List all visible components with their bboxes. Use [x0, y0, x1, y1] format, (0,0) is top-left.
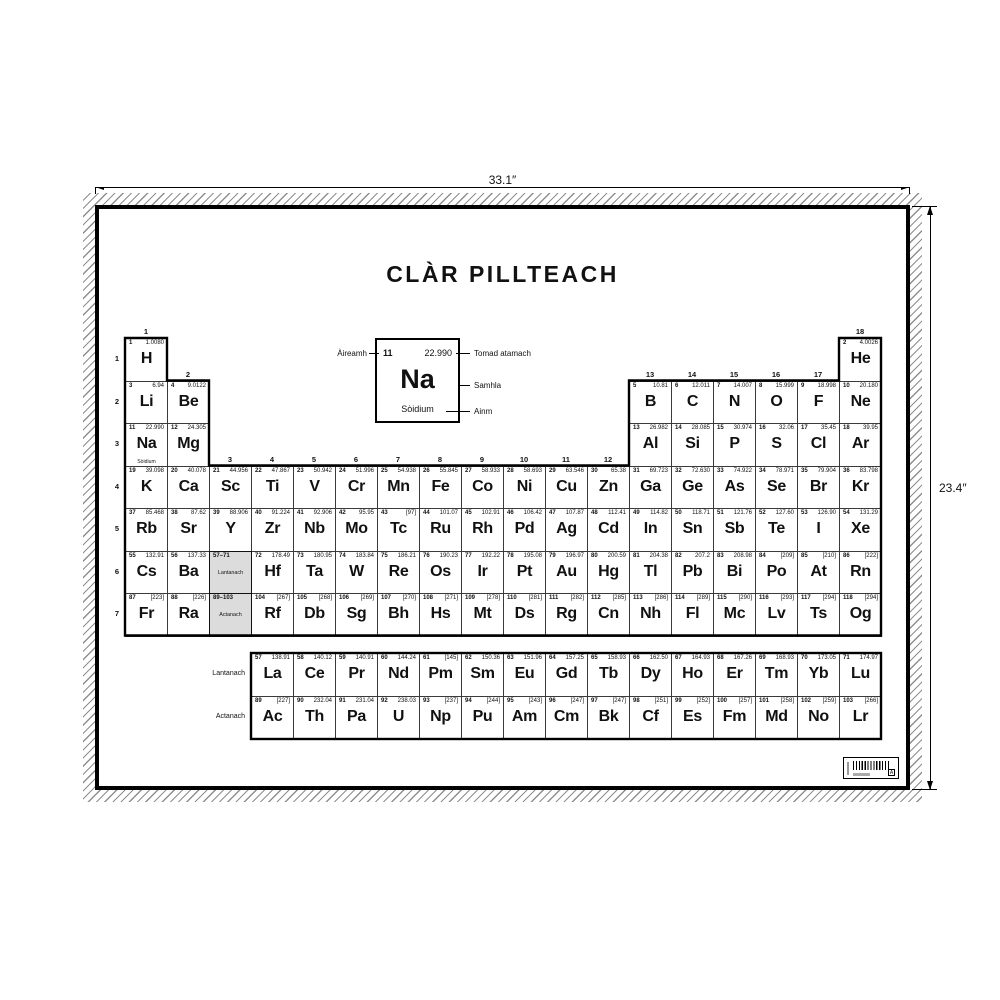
group-label-5: 5	[293, 455, 335, 464]
element-symbol: Ac	[252, 708, 293, 726]
atomic-number: 37	[129, 510, 136, 517]
element-symbol: Tl	[630, 563, 671, 581]
element-symbol: Ru	[420, 520, 461, 538]
atomic-number: 86	[843, 553, 850, 560]
atomic-mass: [271]	[445, 595, 458, 602]
element-cell-Cn: 112[285]Cn	[587, 593, 630, 637]
element-symbol: Mn	[378, 478, 419, 496]
period-label-6: 6	[103, 567, 119, 576]
element-symbol: Cn	[588, 605, 629, 623]
atomic-mass: 178.49	[272, 553, 290, 560]
atomic-mass: [226]	[193, 595, 206, 602]
atomic-mass: [145]	[445, 655, 458, 662]
element-symbol: Db	[294, 605, 335, 623]
atomic-mass: 208.98	[734, 553, 752, 560]
atomic-number: 19	[129, 468, 136, 475]
atomic-mass: 164.93	[692, 655, 710, 662]
atomic-mass: 157.25	[566, 655, 584, 662]
legend-callout-line	[369, 353, 379, 354]
atomic-number: 93	[423, 698, 430, 705]
element-symbol: Cs	[126, 563, 167, 581]
element-symbol: Zr	[252, 520, 293, 538]
element-cell-Mc: 115[290]Mc	[713, 593, 756, 637]
element-cell-Tm: 69168.93Tm	[755, 653, 798, 697]
atomic-mass: [278]	[487, 595, 500, 602]
group-label-18: 18	[839, 327, 881, 336]
element-symbol: Th	[294, 708, 335, 726]
poster: CLÀR PILLTEACH Àireamh 11 22.990 Na Sòid…	[95, 205, 910, 790]
element-cell-Ar: 1839.95Ar	[839, 423, 882, 467]
atomic-number: 51	[717, 510, 724, 517]
certification-mark: A	[888, 769, 895, 776]
atomic-mass: [290]	[739, 595, 752, 602]
element-symbol: Sc	[210, 478, 251, 496]
atomic-number: 110	[507, 595, 517, 602]
atomic-number: 43	[381, 510, 388, 517]
width-dimension-line	[95, 187, 910, 188]
atomic-mass: [259]	[823, 698, 836, 705]
atomic-number: 18	[843, 425, 850, 432]
element-symbol: Ne	[840, 393, 881, 411]
element-cell-Pa: 91231.04Pa	[335, 696, 378, 740]
element-cell-As: 3374.922As	[713, 466, 756, 510]
element-cell-Sg: 106[269]Sg	[335, 593, 378, 637]
drawing-canvas: 33.1″ 23.4″ CLÀR PILLTEACH Àireamh 11 22…	[0, 0, 1000, 1000]
atomic-number: 44	[423, 510, 430, 517]
element-symbol: Bk	[588, 708, 629, 726]
element-symbol: C	[672, 393, 713, 411]
group-label-10: 10	[503, 455, 545, 464]
element-symbol: Bi	[714, 563, 755, 581]
atomic-number: 56	[171, 553, 178, 560]
atomic-number: 95	[507, 698, 514, 705]
element-symbol: Be	[168, 393, 209, 411]
element-cell-Sm: 62150.36Sm	[461, 653, 504, 697]
element-symbol: Cm	[546, 708, 587, 726]
atomic-mass: 69.723	[650, 468, 668, 475]
atomic-mass: 180.95	[314, 553, 332, 560]
element-cell-Pr: 59140.91Pr	[335, 653, 378, 697]
legend-callout-line	[456, 353, 470, 354]
element-cell-K: 1939.098K	[125, 466, 168, 510]
atomic-number: 107	[381, 595, 391, 602]
group-label-6: 6	[335, 455, 377, 464]
element-name: Sòidium	[129, 459, 164, 464]
element-cell-Gd: 64157.25Gd	[545, 653, 588, 697]
atomic-number: 80	[591, 553, 598, 560]
atomic-mass: 95.95	[359, 510, 374, 517]
atomic-mass: 107.87	[566, 510, 584, 517]
element-cell-Os: 76190.23Os	[419, 551, 462, 595]
element-cell-No: 102[259]No	[797, 696, 840, 740]
element-cell-Pd: 46106.42Pd	[503, 508, 546, 552]
atomic-mass: 14.007	[734, 383, 752, 390]
atomic-mass: 207.2	[695, 553, 710, 560]
atomic-mass: 138.91	[272, 655, 290, 662]
atomic-mass: 51.996	[356, 468, 374, 475]
atomic-number: 75	[381, 553, 388, 560]
atomic-mass: 72.630	[692, 468, 710, 475]
atomic-mass: [294]	[823, 595, 836, 602]
element-symbol: S	[756, 435, 797, 453]
element-symbol: Pt	[504, 563, 545, 581]
element-symbol: Np	[420, 708, 461, 726]
atomic-mass: 83.798	[860, 468, 878, 475]
element-symbol: Mo	[336, 520, 377, 538]
element-symbol: Cd	[588, 520, 629, 538]
element-cell-Ds: 110[281]Ds	[503, 593, 546, 637]
element-symbol: Os	[420, 563, 461, 581]
atomic-mass: 40.078	[188, 468, 206, 475]
element-cell-B: 510.81B	[629, 381, 672, 425]
atomic-number: 2	[843, 340, 846, 347]
atomic-number: 58	[297, 655, 304, 662]
atomic-number: 101	[759, 698, 769, 705]
element-cell-Ni: 2858.693Ni	[503, 466, 546, 510]
element-cell-Nb: 4192.906Nb	[293, 508, 336, 552]
element-cell-Db: 105[268]Db	[293, 593, 336, 637]
atomic-number: 64	[549, 655, 556, 662]
element-cell-W: 74183.84W	[335, 551, 378, 595]
atomic-number: 92	[381, 698, 388, 705]
element-cell-U: 92238.03U	[377, 696, 420, 740]
element-cell-Ho: 67164.93Ho	[671, 653, 714, 697]
element-symbol: La	[252, 665, 293, 683]
atomic-number: 102	[801, 698, 811, 705]
element-symbol: Rb	[126, 520, 167, 538]
element-symbol: Co	[462, 478, 503, 496]
element-cell-Cr: 2451.996Cr	[335, 466, 378, 510]
atomic-mass: 54.938	[398, 468, 416, 475]
atomic-number: 55	[129, 553, 136, 560]
atomic-mass: 183.84	[356, 553, 374, 560]
element-cell-Rn: 86[222]Rn	[839, 551, 882, 595]
atomic-mass: 28.085	[692, 425, 710, 432]
atomic-number: 29	[549, 468, 556, 475]
element-cell-Hs: 108[271]Hs	[419, 593, 462, 637]
element-symbol: Md	[756, 708, 797, 726]
atomic-number: 30	[591, 468, 598, 475]
element-symbol: As	[714, 478, 755, 496]
element-symbol: Nh	[630, 605, 671, 623]
atomic-number: 22	[255, 468, 262, 475]
atomic-number: 79	[549, 553, 556, 560]
element-cell-O: 815.999O	[755, 381, 798, 425]
element-cell-Li: 36.94Li	[125, 381, 168, 425]
element-cell-Er: 68167.26Er	[713, 653, 756, 697]
element-symbol: Hf	[252, 563, 293, 581]
element-cell-Th: 90232.04Th	[293, 696, 336, 740]
element-symbol: In	[630, 520, 671, 538]
atomic-mass: 192.22	[482, 553, 500, 560]
dimension-arrow-up	[927, 206, 933, 215]
atomic-number: 32	[675, 468, 682, 475]
element-symbol: Tc	[378, 520, 419, 538]
element-cell-Lr: 103[266]Lr	[839, 696, 882, 740]
atomic-mass: 6.94	[152, 383, 164, 390]
element-cell-Rb: 3785.468Rb	[125, 508, 168, 552]
element-symbol: Lv	[756, 605, 797, 623]
atomic-number: 85	[801, 553, 808, 560]
atomic-mass: 121.76	[734, 510, 752, 517]
element-symbol: U	[378, 708, 419, 726]
element-symbol: Zn	[588, 478, 629, 496]
element-cell-Mt: 109[278]Mt	[461, 593, 504, 637]
period-label-3: 3	[103, 439, 119, 448]
atomic-number: 10	[843, 383, 850, 390]
element-symbol: Ta	[294, 563, 335, 581]
atomic-mass: 26.982	[650, 425, 668, 432]
element-cell-Cm: 96[247]Cm	[545, 696, 588, 740]
atomic-number: 106	[339, 595, 349, 602]
atomic-number: 8	[759, 383, 762, 390]
atomic-number: 112	[591, 595, 601, 602]
element-cell-Te: 52127.60Te	[755, 508, 798, 552]
element-cell-Ce: 58140.12Ce	[293, 653, 336, 697]
element-symbol: Er	[714, 665, 755, 683]
legend-symbol: Na	[377, 364, 458, 395]
atomic-number: 53	[801, 510, 808, 517]
atomic-mass: [243]	[529, 698, 542, 705]
atomic-mass: 63.546	[566, 468, 584, 475]
barcode-number-text	[853, 773, 870, 776]
atomic-number: 6	[675, 383, 678, 390]
atomic-number: 113	[633, 595, 643, 602]
atomic-number: 59	[339, 655, 346, 662]
element-symbol: Yb	[798, 665, 839, 683]
legend-callout-line	[446, 411, 470, 412]
atomic-mass: 102.91	[482, 510, 500, 517]
atomic-mass: [210]	[823, 553, 836, 560]
atomic-number: 111	[549, 595, 558, 602]
atomic-mass: 137.33	[188, 553, 206, 560]
element-symbol: Sn	[672, 520, 713, 538]
atomic-number: 35	[801, 468, 808, 475]
atomic-mass: 58.693	[524, 468, 542, 475]
atomic-mass: [251]	[655, 698, 668, 705]
element-cell-Pm: 61[145]Pm	[419, 653, 462, 697]
atomic-mass: 150.36	[482, 655, 500, 662]
atomic-mass: 35.45	[821, 425, 836, 432]
element-symbol: Pb	[672, 563, 713, 581]
element-symbol: Pd	[504, 520, 545, 538]
element-symbol: Ir	[462, 563, 503, 581]
group-label-13: 13	[629, 370, 671, 379]
atomic-mass: [281]	[529, 595, 542, 602]
element-symbol: He	[840, 350, 881, 368]
element-symbol: Sg	[336, 605, 377, 623]
element-symbol: K	[126, 478, 167, 496]
element-cell-Mg: 1224.305Mg	[167, 423, 210, 467]
atomic-number: 109	[465, 595, 475, 602]
element-cell-He: 24.0026He	[839, 338, 882, 382]
element-symbol: Mt	[462, 605, 503, 623]
element-symbol: Dy	[630, 665, 671, 683]
group-label-2: 2	[167, 370, 209, 379]
placeholder-range: 57–71	[213, 553, 230, 560]
atomic-number: 31	[633, 468, 640, 475]
element-cell-Rh: 45102.91Rh	[461, 508, 504, 552]
element-cell-Sr: 3887.62Sr	[167, 508, 210, 552]
element-symbol: Au	[546, 563, 587, 581]
poster-title: CLÀR PILLTEACH	[99, 261, 906, 288]
atomic-number: 5	[633, 383, 636, 390]
atomic-mass: 101.07	[440, 510, 458, 517]
element-symbol: Ni	[504, 478, 545, 496]
element-cell-Cu: 2963.546Cu	[545, 466, 588, 510]
atomic-number: 69	[759, 655, 766, 662]
atomic-mass: 173.05	[818, 655, 836, 662]
period-label-2: 2	[103, 397, 119, 406]
atomic-mass: 140.12	[314, 655, 332, 662]
atomic-mass: 232.04	[314, 698, 332, 705]
legend-atomic-number: 11	[383, 348, 393, 358]
atomic-mass: 92.906	[314, 510, 332, 517]
atomic-number: 88	[171, 595, 178, 602]
atomic-mass: [222]	[865, 553, 878, 560]
atomic-number: 21	[213, 468, 220, 475]
atomic-mass: 30.974	[734, 425, 752, 432]
element-symbol: Rf	[252, 605, 293, 623]
atomic-number: 66	[633, 655, 640, 662]
group-label-7: 7	[377, 455, 419, 464]
atomic-number: 52	[759, 510, 766, 517]
atomic-mass: 39.098	[146, 468, 164, 475]
element-symbol: Ho	[672, 665, 713, 683]
atomic-mass: 144.24	[398, 655, 416, 662]
atomic-number: 28	[507, 468, 514, 475]
element-symbol: At	[798, 563, 839, 581]
atomic-mass: 151.96	[524, 655, 542, 662]
barcode-side-text	[847, 762, 849, 775]
element-symbol: F	[798, 393, 839, 411]
atomic-number: 33	[717, 468, 724, 475]
atomic-mass: 158.93	[608, 655, 626, 662]
atomic-mass: 91.224	[272, 510, 290, 517]
element-symbol: Sr	[168, 520, 209, 538]
atomic-mass: 10.81	[653, 383, 668, 390]
atomic-mass: 1.0080	[146, 340, 164, 347]
element-symbol: Fr	[126, 605, 167, 623]
element-cell-Mn: 2554.938Mn	[377, 466, 420, 510]
element-symbol: Pr	[336, 665, 377, 683]
atomic-number: 96	[549, 698, 556, 705]
placeholder-range: 89–103	[213, 595, 233, 602]
atomic-mass: 167.26	[734, 655, 752, 662]
group-label-15: 15	[713, 370, 755, 379]
legend-name-label: Ainm	[474, 407, 492, 416]
element-symbol: Fm	[714, 708, 755, 726]
atomic-mass: [282]	[571, 595, 584, 602]
atomic-mass: [252]	[697, 698, 710, 705]
element-cell-Cf: 98[251]Cf	[629, 696, 672, 740]
element-cell-F: 918.998F	[797, 381, 840, 425]
element-symbol: Lr	[840, 708, 881, 726]
atomic-number: 99	[675, 698, 682, 705]
height-dimension-line	[930, 206, 931, 790]
atomic-number: 84	[759, 553, 766, 560]
atomic-mass: 186.21	[398, 553, 416, 560]
element-symbol: Fe	[420, 478, 461, 496]
element-cell-Fm: 100[257]Fm	[713, 696, 756, 740]
element-cell-Dy: 66162.50Dy	[629, 653, 672, 697]
atomic-number: 82	[675, 553, 682, 560]
element-cell-Fr: 87[223]Fr	[125, 593, 168, 637]
element-cell-Na: 1122.990NaSòidium	[125, 423, 168, 467]
element-cell-Co: 2758.933Co	[461, 466, 504, 510]
element-cell-Lv: 116[293]Lv	[755, 593, 798, 637]
atomic-mass: 55.845	[440, 468, 458, 475]
element-symbol: Bh	[378, 605, 419, 623]
group-label-9: 9	[461, 455, 503, 464]
atomic-mass: 200.59	[608, 553, 626, 560]
atomic-mass: 238.03	[398, 698, 416, 705]
element-symbol: Eu	[504, 665, 545, 683]
element-cell-Bk: 97[247]Bk	[587, 696, 630, 740]
extension-tick	[912, 206, 937, 207]
element-symbol: Tm	[756, 665, 797, 683]
element-symbol: B	[630, 393, 671, 411]
atomic-mass: [268]	[319, 595, 332, 602]
element-cell-Rg: 111[282]Rg	[545, 593, 588, 637]
atomic-mass: [267]	[277, 595, 290, 602]
element-symbol: Ti	[252, 478, 293, 496]
atomic-mass: [269]	[361, 595, 374, 602]
element-cell-Ta: 73180.95Ta	[293, 551, 336, 595]
atomic-mass: 32.06	[779, 425, 794, 432]
atomic-number: 24	[339, 468, 346, 475]
legend-element-name: Sòidium	[377, 404, 458, 414]
element-symbol: Rg	[546, 605, 587, 623]
atomic-mass: 204.38	[650, 553, 668, 560]
atomic-number: 61	[423, 655, 430, 662]
element-cell-Tb: 65158.93Tb	[587, 653, 630, 697]
element-cell-Am: 95[243]Am	[503, 696, 546, 740]
element-symbol: Pm	[420, 665, 461, 683]
element-cell-Sc: 2144.956Sc	[209, 466, 252, 510]
atomic-mass: 44.956	[230, 468, 248, 475]
element-symbol: Rn	[840, 563, 881, 581]
element-symbol: Cu	[546, 478, 587, 496]
element-cell-Sb: 51121.76Sb	[713, 508, 756, 552]
atomic-mass: 195.08	[524, 553, 542, 560]
atomic-mass: 74.922	[734, 468, 752, 475]
element-symbol: Pa	[336, 708, 377, 726]
group-label-16: 16	[755, 370, 797, 379]
element-symbol: Re	[378, 563, 419, 581]
element-symbol: Nb	[294, 520, 335, 538]
element-symbol: Ba	[168, 563, 209, 581]
atomic-mass: [293]	[781, 595, 794, 602]
element-symbol: Tb	[588, 665, 629, 683]
element-cell-Ge: 3272.630Ge	[671, 466, 714, 510]
atomic-mass: [97]	[406, 510, 416, 517]
element-cell-At: 85[210]At	[797, 551, 840, 595]
atomic-number: 105	[297, 595, 307, 602]
atomic-number: 54	[843, 510, 850, 517]
atomic-number: 97	[591, 698, 598, 705]
atomic-mass: [266]	[865, 698, 878, 705]
atomic-number: 16	[759, 425, 766, 432]
element-cell-Ru: 44101.07Ru	[419, 508, 462, 552]
atomic-mass: 190.23	[440, 553, 458, 560]
element-symbol: V	[294, 478, 335, 496]
element-symbol: O	[756, 393, 797, 411]
element-cell-Re: 75186.21Re	[377, 551, 420, 595]
width-dimension-label: 33.1″	[95, 173, 910, 187]
atomic-mass: [285]	[613, 595, 626, 602]
atomic-number: 77	[465, 553, 472, 560]
